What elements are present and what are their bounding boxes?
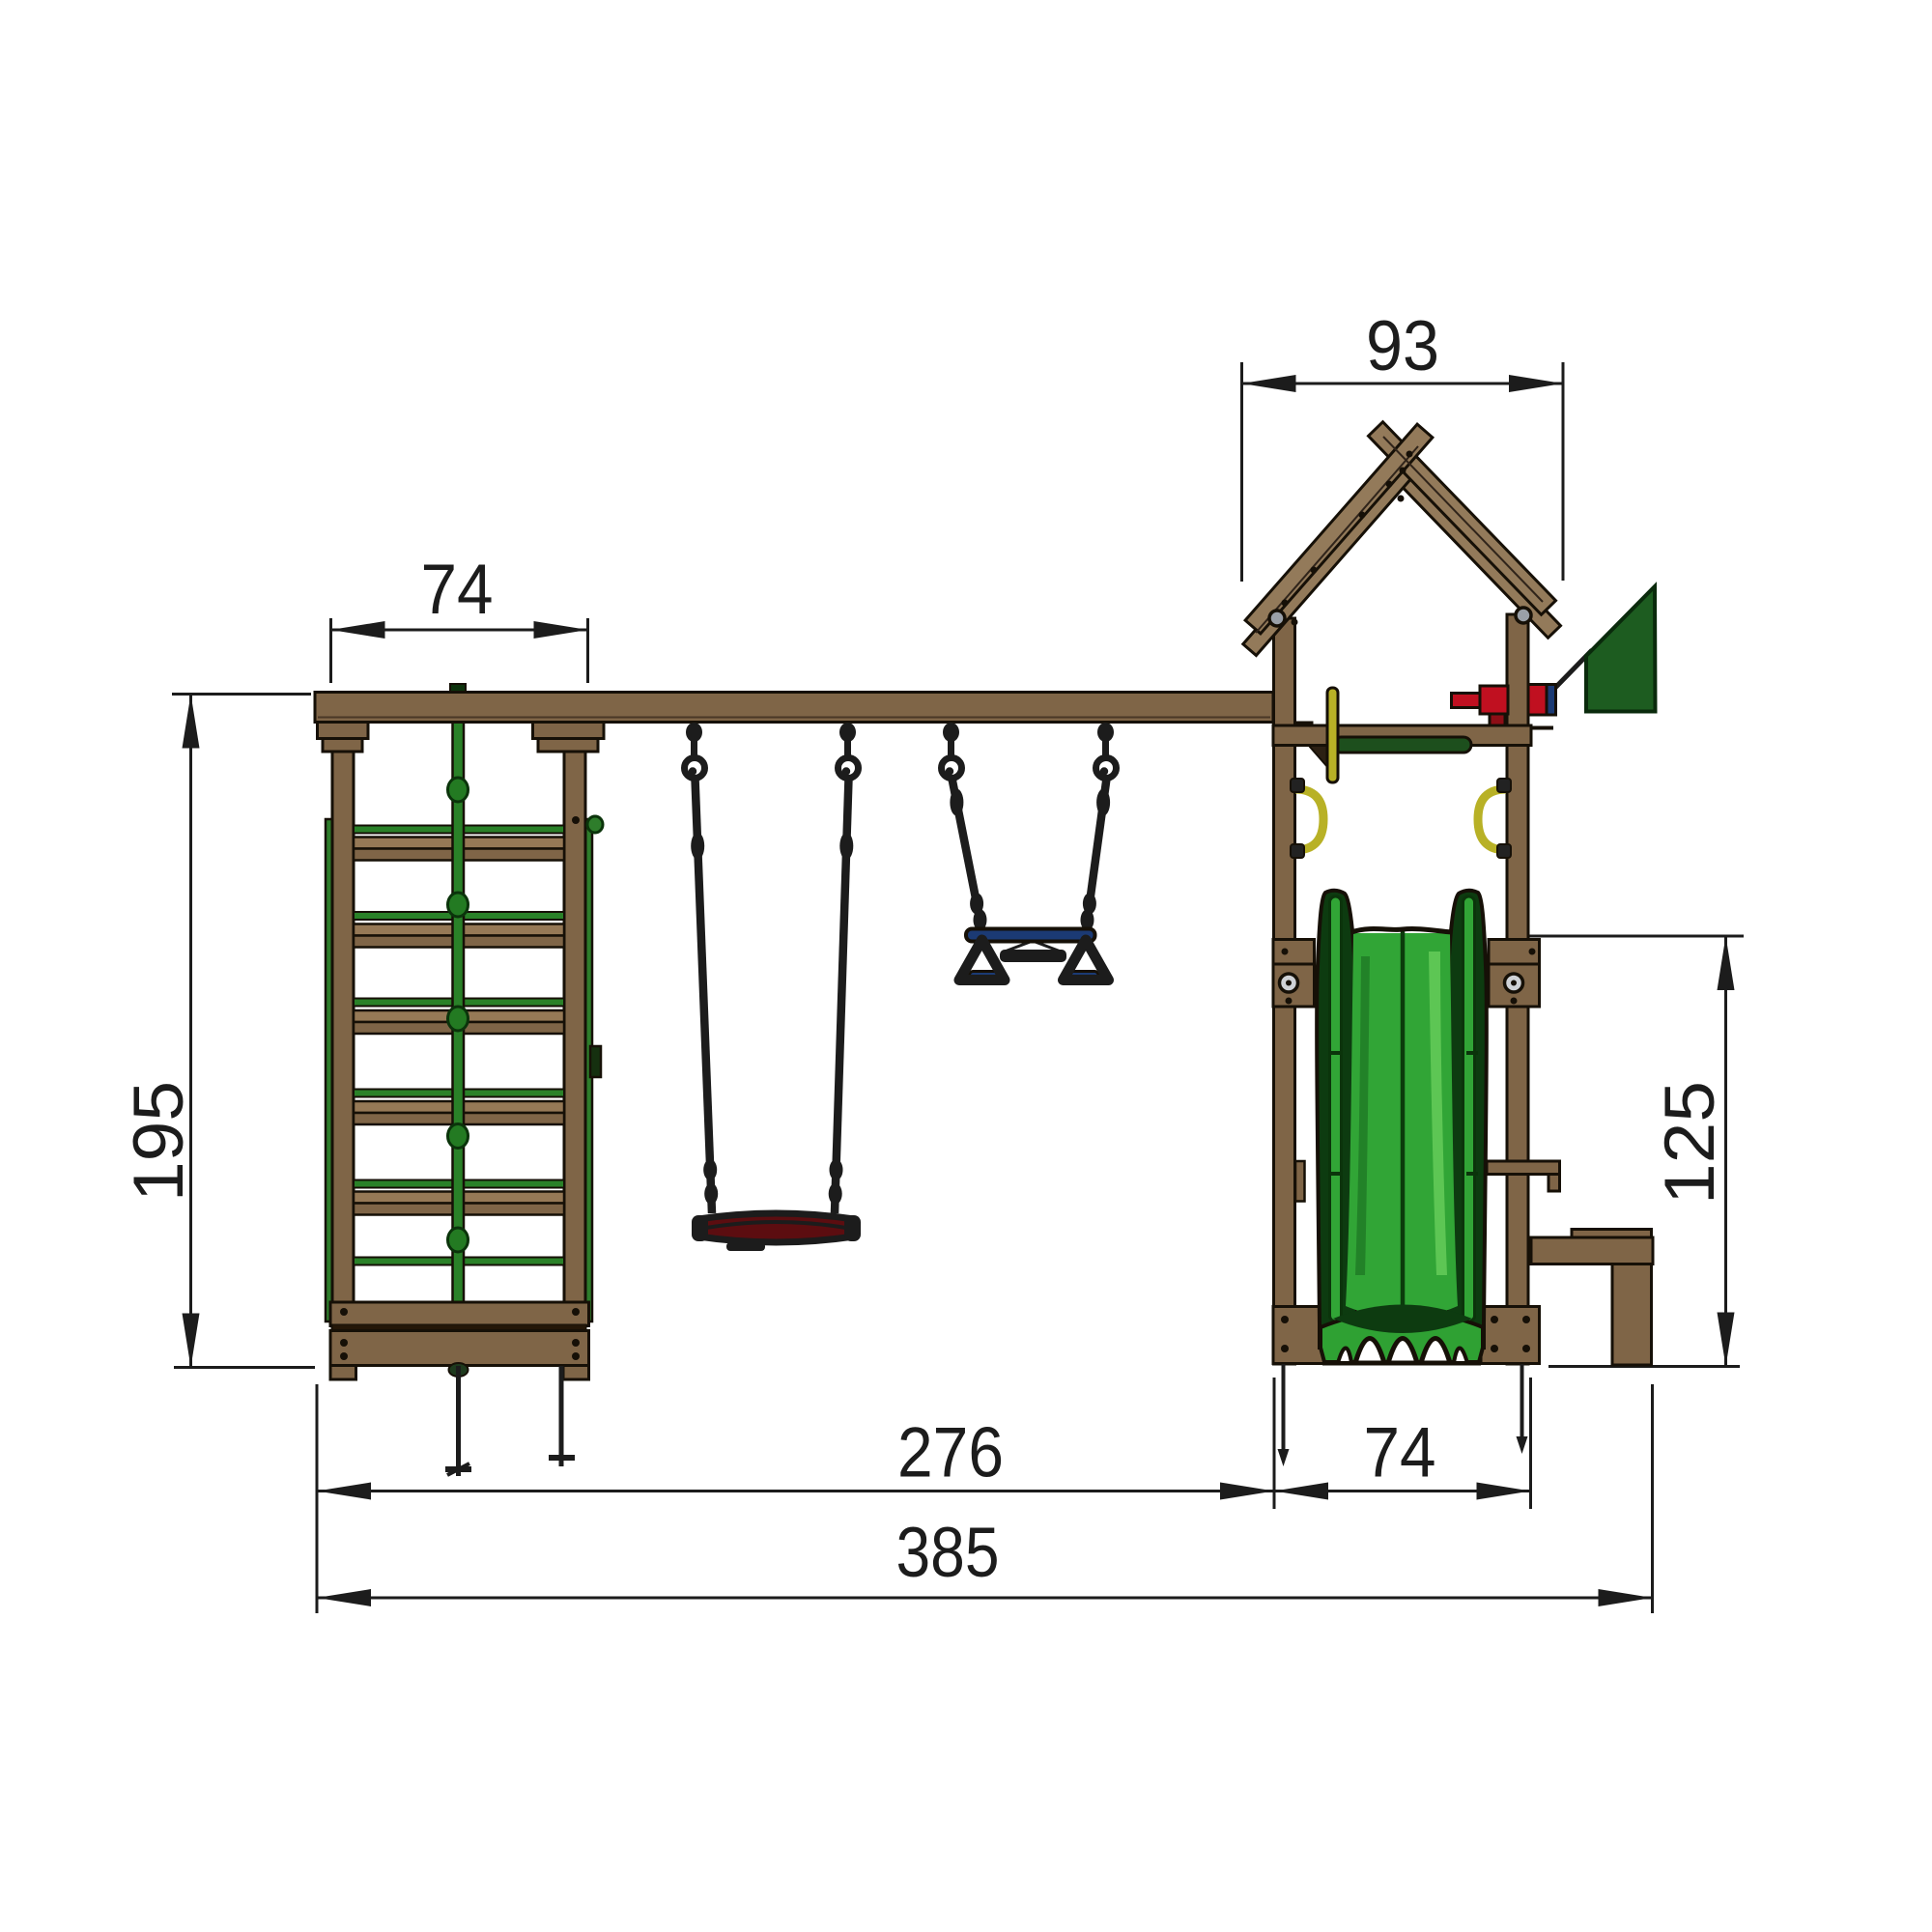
svg-text:93: 93 xyxy=(1366,307,1439,385)
svg-text:385: 385 xyxy=(896,1514,1000,1592)
svg-text:74: 74 xyxy=(1364,1414,1436,1492)
svg-text:74: 74 xyxy=(421,551,494,629)
svg-text:125: 125 xyxy=(1651,1081,1729,1205)
svg-text:195: 195 xyxy=(120,1081,198,1202)
svg-text:276: 276 xyxy=(897,1414,1004,1492)
